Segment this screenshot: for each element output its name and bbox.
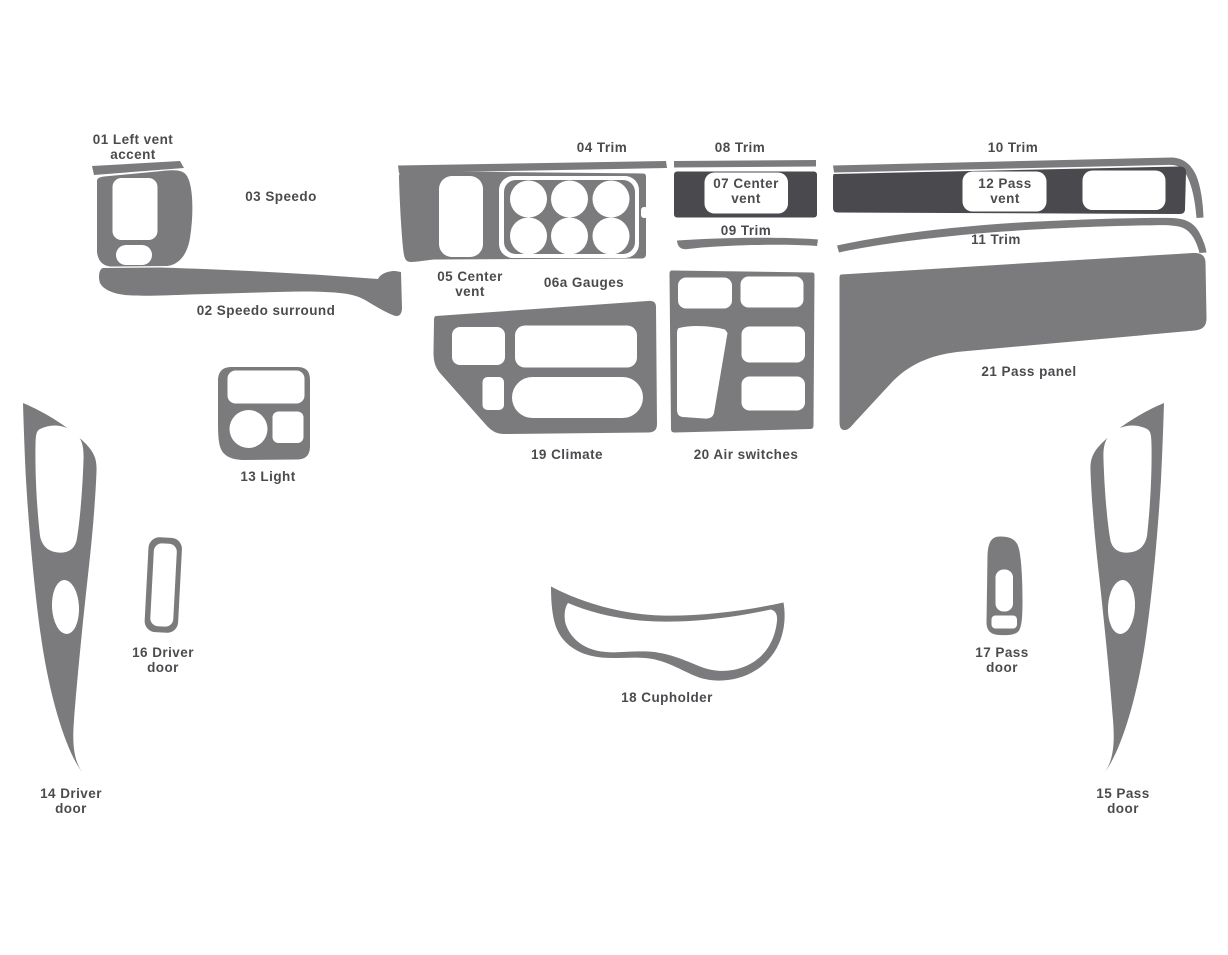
part-18-cupholder-shape [551,587,785,681]
dash-kit-parts-diagram: 01 Left vent accent 03 Speedo 02 Speedo … [0,0,1228,955]
part-05-label: 05 Center vent [437,270,503,299]
part-15-label: 15 Pass door [1096,787,1149,816]
part-12-label: 12 Pass vent [978,177,1031,206]
part-14-label: 14 Driver door [40,787,102,816]
part-06a-gauges-shape [504,180,635,255]
part-11-trim-shape [837,218,1207,253]
part-14-driver-door-shape [23,403,97,772]
part-08-trim-shape [674,160,816,168]
part-15-pass-door-shape [1090,403,1164,772]
part-17-pass-door-shape [987,537,1023,636]
part-21-label: 21 Pass panel [981,365,1076,380]
part-13-label: 13 Light [240,470,295,485]
part-03-label: 03 Speedo [245,190,317,205]
part-21-pass-panel-shape [840,253,1207,430]
part-11-label: 11 Trim [971,233,1021,248]
part-18-label: 18 Cupholder [621,691,713,706]
part-08-label: 08 Trim [715,141,765,156]
part-09-trim-shape [677,238,818,249]
part-04-label: 04 Trim [577,141,627,156]
part-09-label: 09 Trim [721,224,771,239]
part-02-label: 02 Speedo surround [197,304,336,319]
part-10-label: 10 Trim [988,141,1038,156]
part-20-air-switches-shape [670,271,815,433]
part-13-light-shape [218,367,310,460]
part-16-driver-door-shape [144,537,182,634]
part-06a-label: 06a Gauges [544,276,624,291]
part-01-label: 01 Left vent accent [93,133,173,162]
part-19-label: 19 Climate [531,448,603,463]
part-20-label: 20 Air switches [694,448,799,463]
part-17-label: 17 Pass door [975,646,1028,675]
part-16-label: 16 Driver door [132,646,194,675]
part-07-label: 07 Center vent [713,177,779,206]
part-03-speedo-shape [97,170,192,266]
part-04-trim-shape [398,161,667,173]
part-19-climate-shape [434,301,658,434]
